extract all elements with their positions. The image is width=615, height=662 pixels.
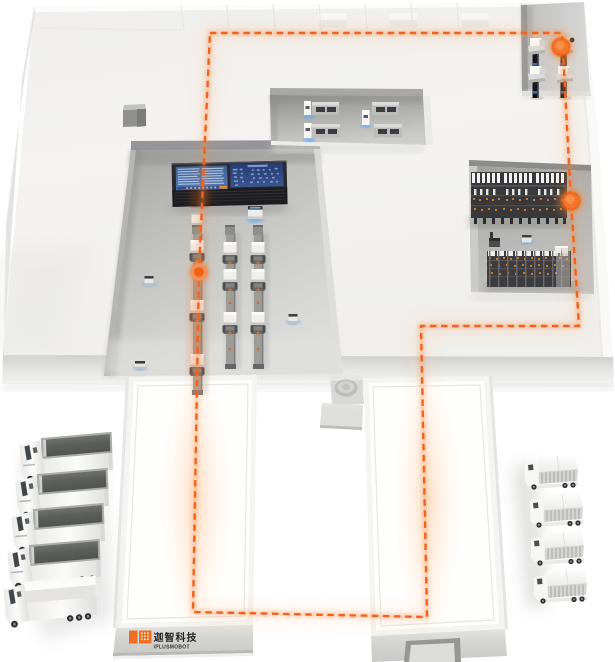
svg-text:迦智科技: 迦智科技 — [154, 631, 198, 644]
svg-text:iPLUSMOBOT: iPLUSMOBOT — [154, 645, 190, 651]
